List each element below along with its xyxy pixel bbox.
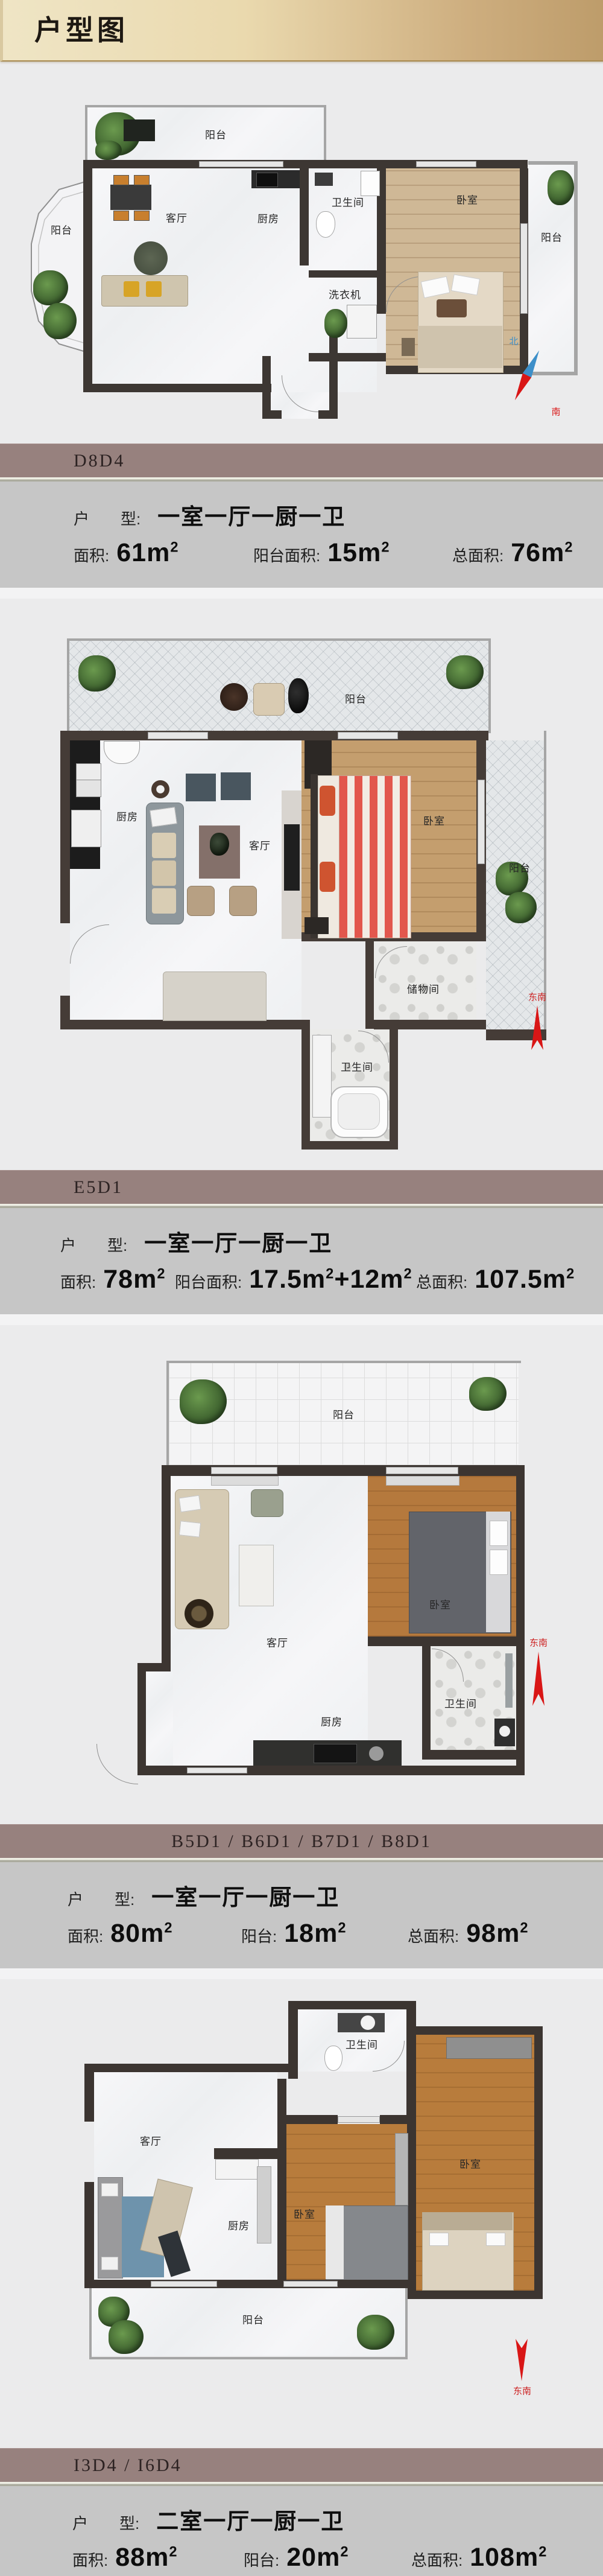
room-label-bath: 卫生间 — [346, 2037, 378, 2052]
floor-plan-4: 卫生间 卧室 客厅 厨房 — [0, 0, 603, 2576]
wall — [406, 2026, 543, 2035]
divider — [0, 2482, 603, 2486]
pillow — [101, 2183, 118, 2196]
wall — [534, 2026, 543, 2299]
metric-area: 面积: 88m2 — [72, 2543, 244, 2572]
room-label-kitchen: 厨房 — [228, 2218, 250, 2233]
wall — [84, 2064, 298, 2072]
bed-blanket-fold — [422, 2212, 513, 2230]
room-label-balcony-bottom: 阳台 — [242, 2312, 264, 2327]
type-row: 户 型: 二室一厅一厨一卫 — [72, 2503, 344, 2536]
window — [151, 2281, 217, 2287]
unit-code: I3D4 / I6D4 — [74, 2455, 182, 2475]
bath-sink-bowl — [361, 2015, 375, 2030]
wall — [214, 2148, 277, 2159]
kitchen-counter — [257, 2166, 271, 2244]
pillow — [101, 2257, 118, 2270]
window — [283, 2281, 338, 2287]
pillow — [486, 2233, 505, 2246]
wardrobe — [446, 2037, 532, 2059]
metric-balcony: 阳台: 20m2 — [244, 2543, 411, 2572]
compass-se-arrow-icon — [516, 2339, 528, 2381]
wall — [406, 2291, 543, 2299]
wall — [277, 2115, 338, 2124]
kitchen-cabinet — [215, 2159, 259, 2180]
window — [338, 2116, 380, 2123]
floorplan-page: 户型图 阳台 阳台 — [0, 0, 603, 2576]
wall — [89, 2288, 92, 2359]
wall — [380, 2115, 407, 2124]
metric-total: 总面积: 108m2 — [411, 2543, 547, 2572]
room-label-bedroom-small: 卧室 — [294, 2206, 315, 2221]
wall — [84, 2064, 94, 2122]
wall — [288, 2001, 416, 2009]
spec-panel-4: 户 型: 二室一厅一厨一卫 面积: 88m2 阳台: 20m2 总面积: 108… — [0, 2486, 603, 2576]
wall — [277, 2079, 286, 2296]
wardrobe — [395, 2133, 408, 2206]
wall — [89, 2357, 408, 2359]
pillow — [429, 2233, 449, 2246]
type-label: 户 型: — [72, 2511, 139, 2534]
metrics-row: 面积: 88m2 阳台: 20m2 总面积: 108m2 — [72, 2543, 585, 2572]
type-value: 二室一厅一厨一卫 — [156, 2503, 344, 2536]
wall — [405, 2288, 408, 2359]
wall — [84, 2280, 416, 2288]
section-bar-i3d4: I3D4 / I6D4 — [0, 2448, 603, 2482]
wall — [84, 2182, 94, 2288]
room-label-living: 客厅 — [140, 2133, 162, 2148]
toilet — [324, 2046, 343, 2071]
room-label-bedroom-large: 卧室 — [459, 2156, 481, 2171]
compass-se-label: 东南 — [513, 2385, 531, 2397]
bed-sheet — [326, 2206, 344, 2279]
